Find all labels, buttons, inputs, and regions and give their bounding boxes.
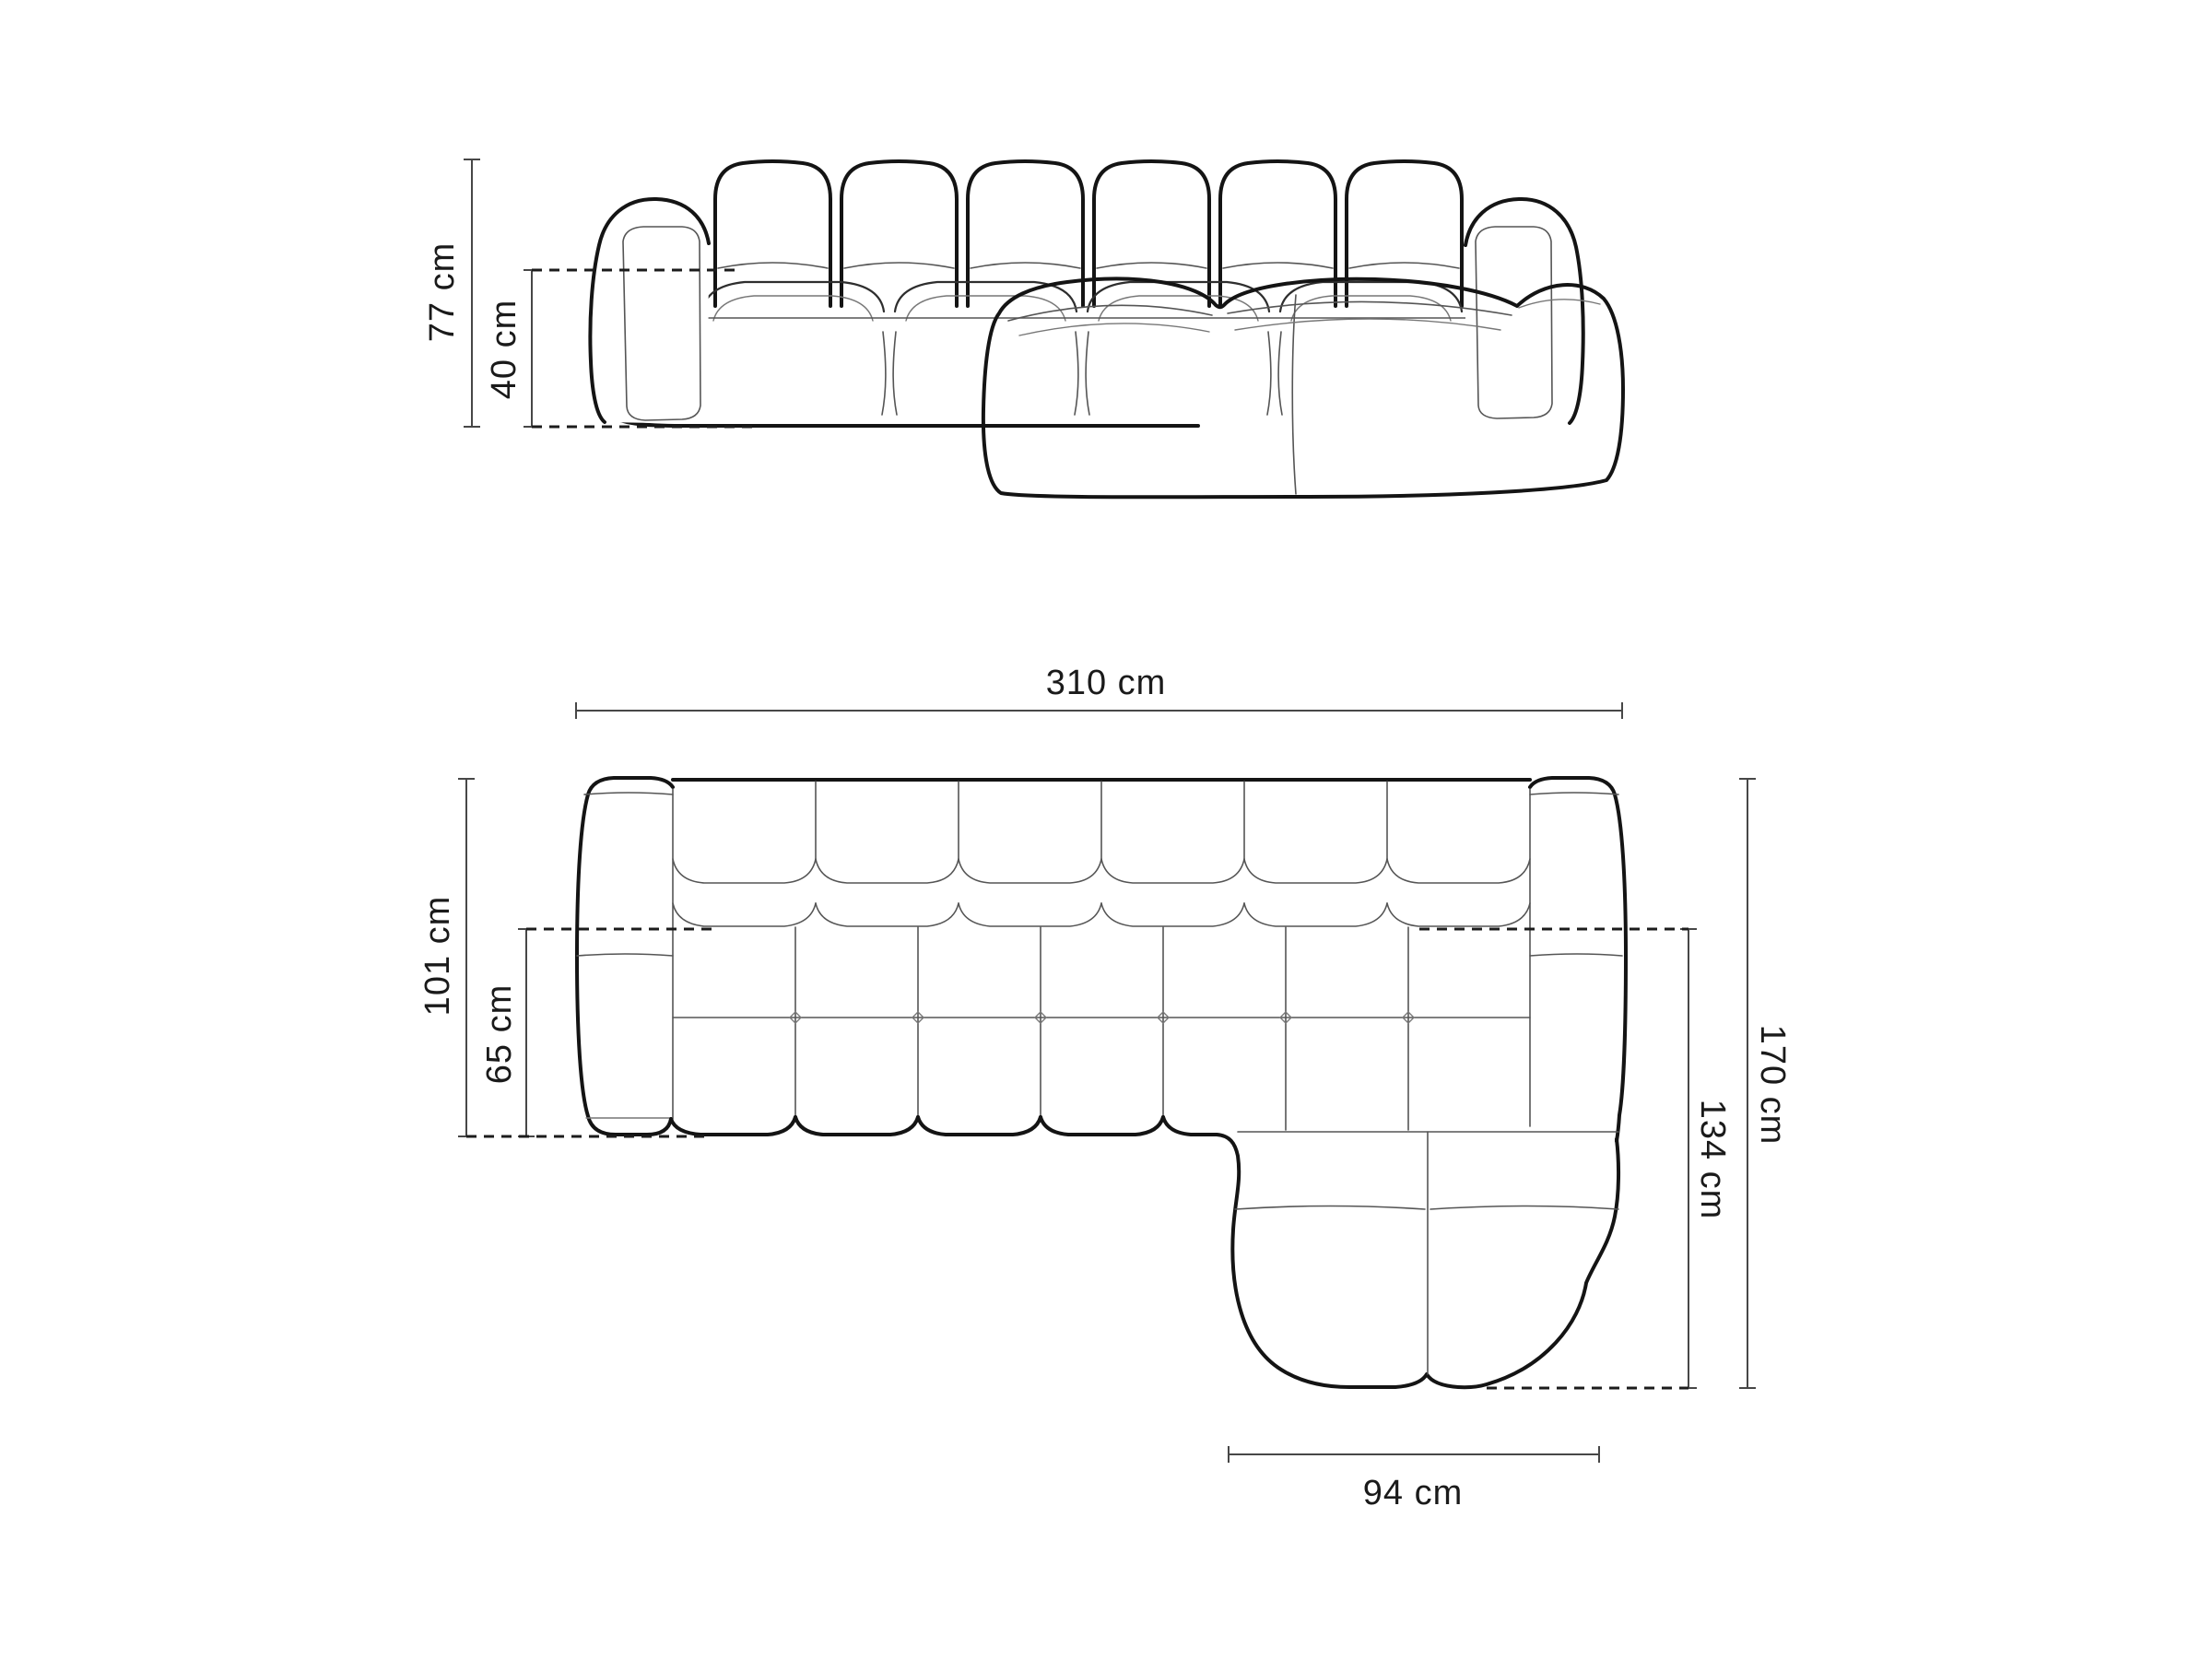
front-right-armrest — [1465, 199, 1583, 425]
front-back-cushions — [715, 161, 1462, 306]
dimension-label-total-depth: 170 cm — [1755, 1025, 1790, 1146]
dashed-reference-lines — [466, 270, 1688, 1388]
dimension-label-total-width: 310 cm — [1046, 665, 1167, 700]
plan-right-armrest — [1530, 778, 1626, 1141]
dimension-label-seat-depth: 65 cm — [482, 984, 517, 1084]
plan-back-cushions — [673, 782, 1530, 926]
dimension-label-chaise-width: 94 cm — [1363, 1476, 1463, 1511]
sofa-dimension-diagram: 77 cm 40 cm 310 cm 101 cm 65 cm 170 cm 1… — [0, 0, 2212, 1659]
dimension-label-body-depth: 101 cm — [420, 896, 455, 1017]
plan-view-drawing — [577, 778, 1626, 1387]
diagram-linework — [0, 0, 2212, 1659]
dimension-label-total-height: 77 cm — [425, 242, 460, 342]
plan-chaise — [1217, 1132, 1618, 1387]
plan-seat-front-edge — [671, 1117, 1217, 1135]
plan-seat-grid — [673, 927, 1530, 1130]
dimension-label-seat-height: 40 cm — [487, 300, 522, 399]
front-left-armrest — [590, 199, 709, 424]
front-view-drawing — [590, 161, 1623, 497]
dimension-label-chaise-depth: 134 cm — [1695, 1100, 1730, 1220]
plan-left-armrest — [577, 778, 673, 1135]
